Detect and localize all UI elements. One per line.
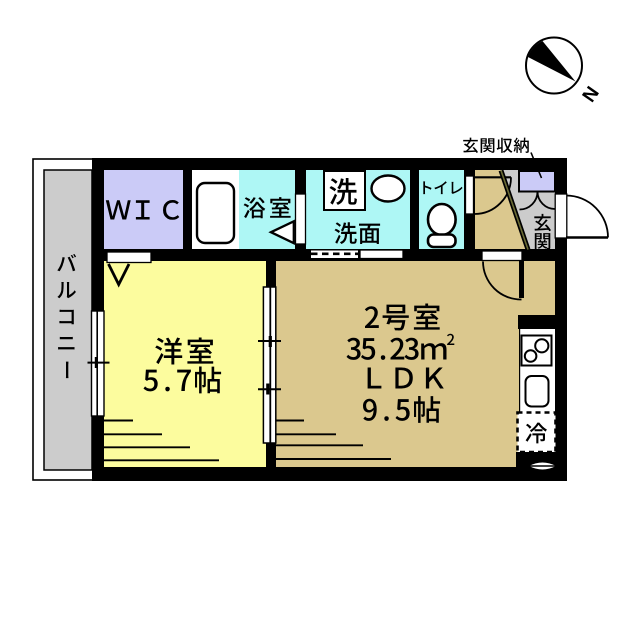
svg-text:N: N (577, 82, 602, 105)
